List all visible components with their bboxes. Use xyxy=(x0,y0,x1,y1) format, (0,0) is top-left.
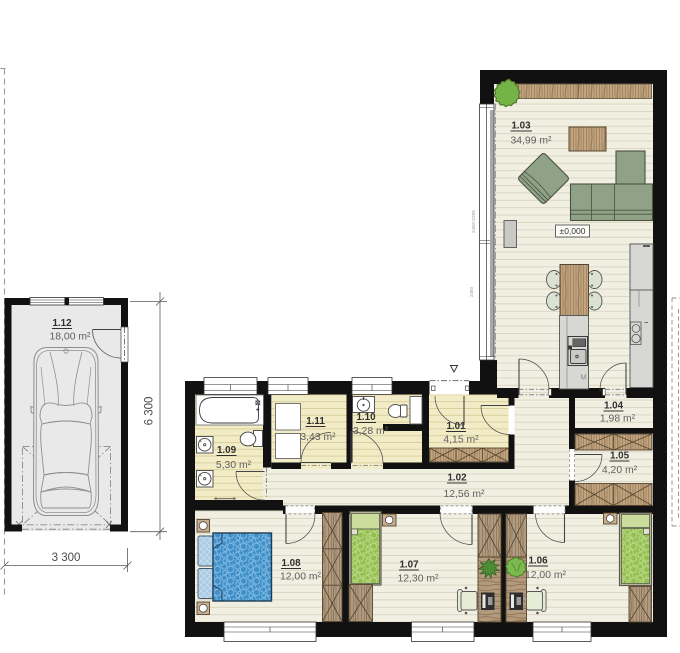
svg-text:3,43 m²: 3,43 m² xyxy=(300,432,336,443)
svg-text:1.09: 1.09 xyxy=(217,445,237,456)
svg-text:12,00 m²: 12,00 m² xyxy=(280,572,322,583)
svg-text:12,56 m²: 12,56 m² xyxy=(443,489,485,500)
svg-text:1.03: 1.03 xyxy=(511,121,531,132)
svg-text:±0,000: ±0,000 xyxy=(560,226,586,236)
svg-text:1.10: 1.10 xyxy=(356,412,376,423)
svg-text:1.11: 1.11 xyxy=(306,416,325,427)
svg-text:3,28 m²: 3,28 m² xyxy=(353,426,389,437)
svg-text:M: M xyxy=(580,373,586,382)
svg-text:12,00 m²: 12,00 m² xyxy=(525,570,567,581)
svg-text:1.06: 1.06 xyxy=(528,556,548,567)
svg-text:1.01: 1.01 xyxy=(446,421,466,432)
svg-text:2450×2250: 2450×2250 xyxy=(471,210,476,233)
svg-text:5,30 m²: 5,30 m² xyxy=(216,460,252,471)
svg-text:2450: 2450 xyxy=(469,286,474,297)
svg-text:1.07: 1.07 xyxy=(399,560,419,571)
svg-text:34,99 m²: 34,99 m² xyxy=(510,136,552,147)
svg-text:1.08: 1.08 xyxy=(281,558,301,569)
svg-text:4,15 m²: 4,15 m² xyxy=(443,435,479,446)
svg-text:1,98 m²: 1,98 m² xyxy=(600,414,636,425)
svg-text:1.05: 1.05 xyxy=(610,451,630,462)
svg-text:1.12: 1.12 xyxy=(52,318,72,329)
svg-text:1.04: 1.04 xyxy=(604,401,624,412)
svg-text:18,00 m²: 18,00 m² xyxy=(49,332,91,343)
svg-text:12,30 m²: 12,30 m² xyxy=(397,574,439,585)
svg-text:6 300: 6 300 xyxy=(144,397,156,426)
svg-text:4,20 m²: 4,20 m² xyxy=(602,465,638,476)
svg-text:3 300: 3 300 xyxy=(52,552,81,564)
svg-text:1.02: 1.02 xyxy=(447,473,467,484)
